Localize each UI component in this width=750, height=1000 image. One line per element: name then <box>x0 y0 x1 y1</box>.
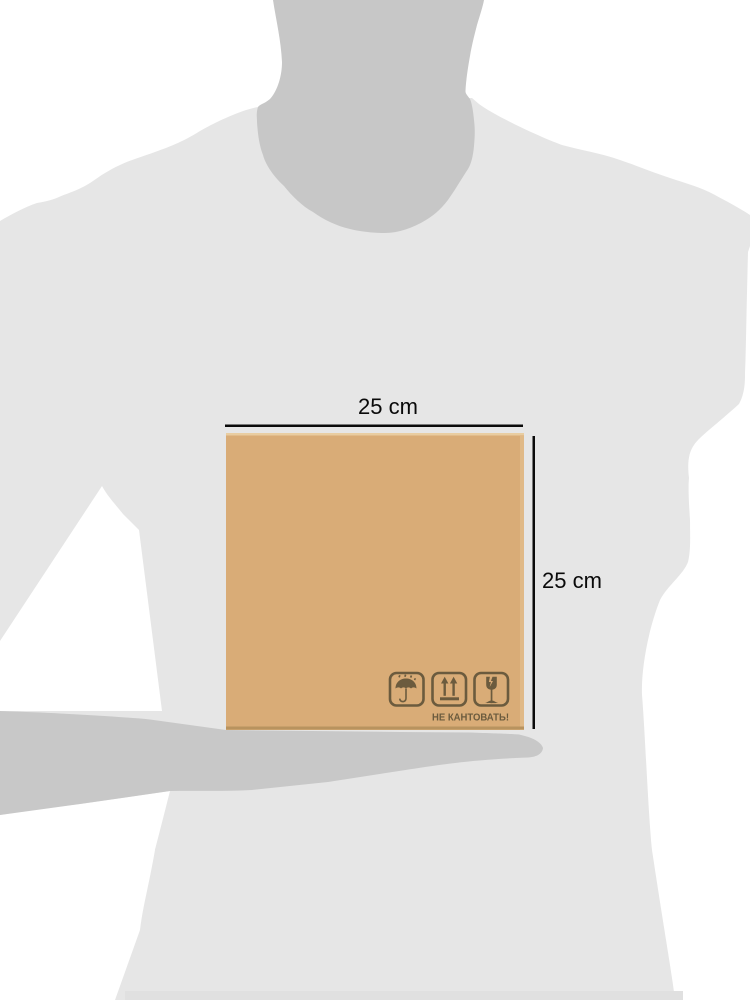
svg-text:25 cm: 25 cm <box>358 394 418 419</box>
svg-text:НЕ КАНТОВАТЬ!: НЕ КАНТОВАТЬ! <box>432 712 509 723</box>
svg-text:25 cm: 25 cm <box>542 568 602 593</box>
